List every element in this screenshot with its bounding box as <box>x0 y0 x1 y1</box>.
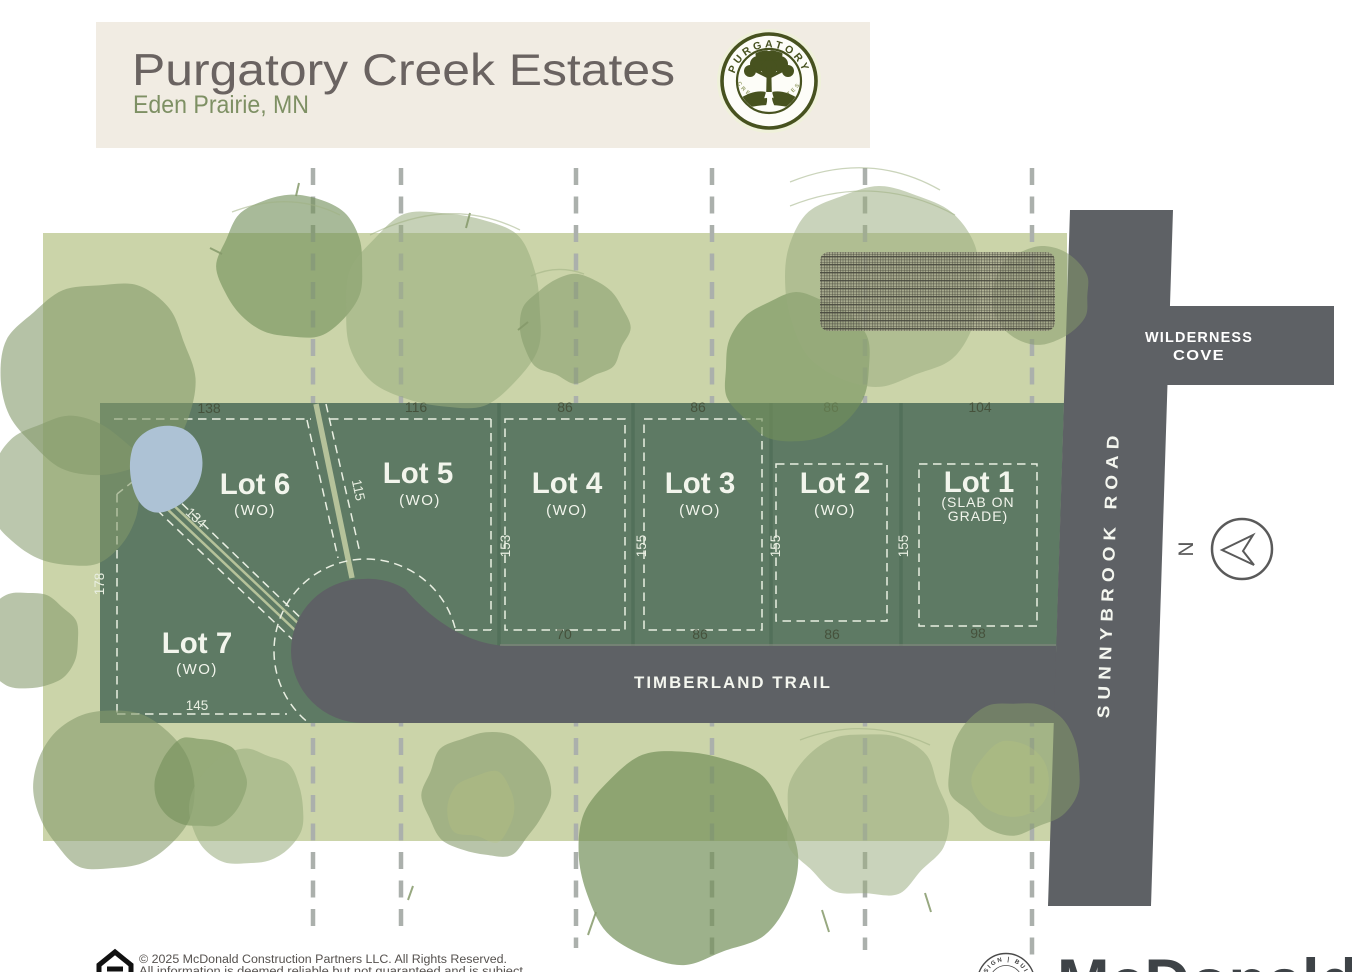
svg-text:All information is deemed reli: All information is deemed reliable but n… <box>139 966 524 972</box>
svg-text:153: 153 <box>498 535 513 558</box>
svg-text:TIMBERLAND TRAIL: TIMBERLAND TRAIL <box>634 674 832 692</box>
svg-text:(WO): (WO) <box>679 502 721 519</box>
svg-text:98: 98 <box>970 625 986 641</box>
svg-text:Lot 7: Lot 7 <box>162 627 232 660</box>
svg-text:155: 155 <box>768 535 783 558</box>
svg-text:Lot 3: Lot 3 <box>665 467 735 500</box>
svg-text:© 2025 McDonald Construction P: © 2025 McDonald Construction Partners LL… <box>139 954 507 966</box>
svg-text:Purgatory Creek Estates: Purgatory Creek Estates <box>132 46 675 95</box>
svg-text:Lot 5: Lot 5 <box>383 457 453 490</box>
svg-text:145: 145 <box>186 698 209 713</box>
svg-text:86: 86 <box>824 626 840 642</box>
svg-text:COVE: COVE <box>1173 348 1225 364</box>
svg-text:86: 86 <box>690 399 706 415</box>
svg-text:138: 138 <box>197 400 221 416</box>
svg-text:Eden Prairie, MN: Eden Prairie, MN <box>133 91 309 119</box>
svg-text:WILDERNESS: WILDERNESS <box>1145 330 1253 346</box>
svg-text:McDonald: McDonald <box>1057 947 1352 972</box>
svg-text:86: 86 <box>557 399 573 415</box>
svg-text:Lot 6: Lot 6 <box>220 468 290 501</box>
svg-text:Lot 4: Lot 4 <box>532 467 603 500</box>
svg-text:86: 86 <box>692 626 708 642</box>
svg-text:155: 155 <box>896 535 911 558</box>
svg-text:N: N <box>1175 541 1198 556</box>
svg-text:155: 155 <box>634 535 649 558</box>
svg-text:(WO): (WO) <box>546 502 588 519</box>
svg-text:GRADE): GRADE) <box>948 508 1008 524</box>
svg-text:70: 70 <box>556 626 572 642</box>
svg-text:Lot 2: Lot 2 <box>800 467 870 500</box>
svg-text:(WO): (WO) <box>176 661 218 678</box>
svg-text:(WO): (WO) <box>814 502 856 519</box>
svg-text:(WO): (WO) <box>399 492 441 509</box>
svg-text:104: 104 <box>968 399 992 415</box>
svg-text:(WO): (WO) <box>234 502 276 519</box>
svg-text:178: 178 <box>92 573 107 596</box>
